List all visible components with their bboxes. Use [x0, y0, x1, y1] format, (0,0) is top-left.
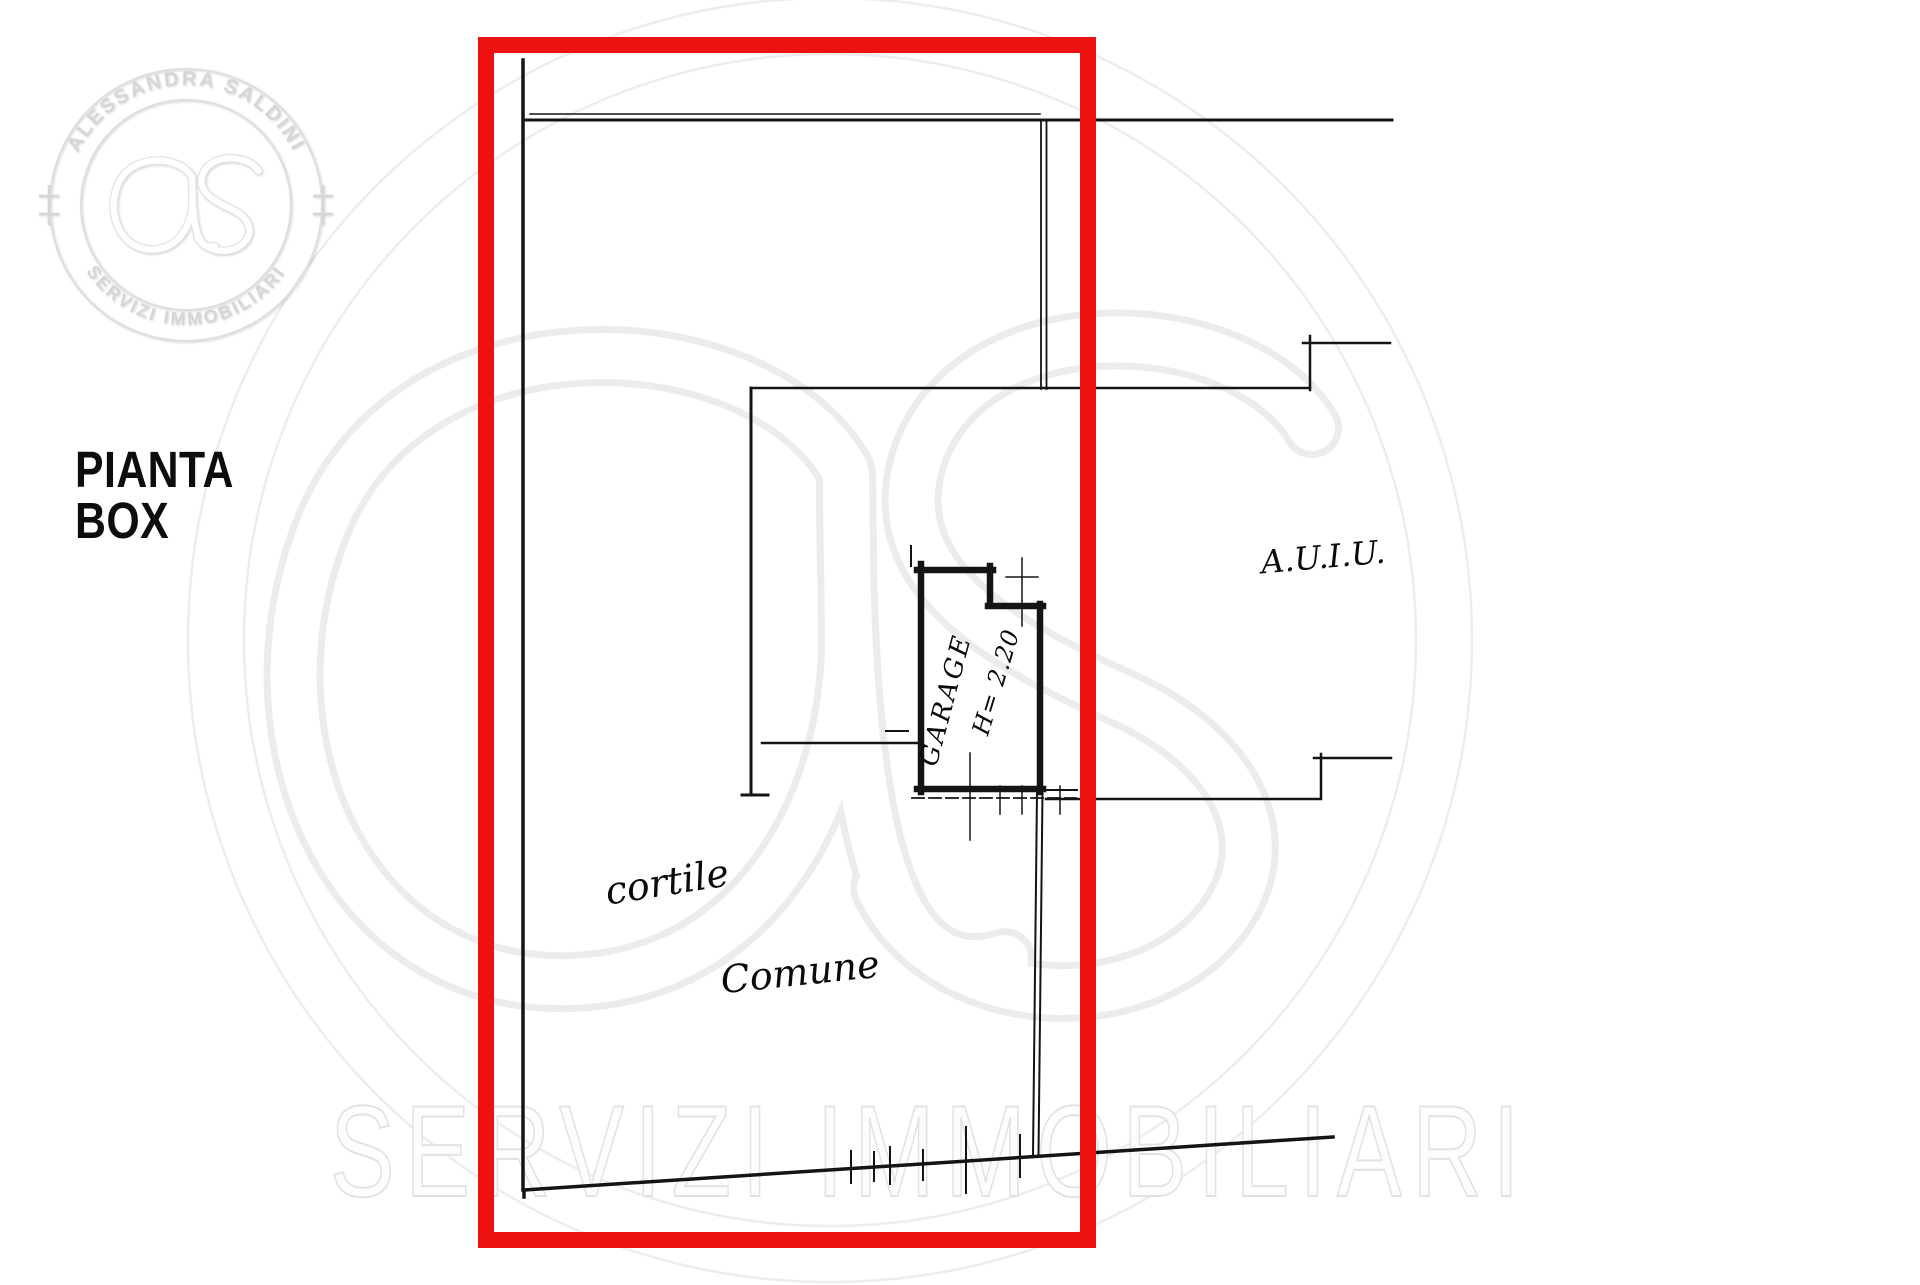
logo-top-arc-text: ALESSANDRA SALDINI: [63, 68, 309, 155]
agency-logo: ALESSANDRA SALDINI SERVIZI IMMOBILIARI: [30, 55, 342, 355]
page-title: PIANTA BOX: [75, 444, 234, 546]
svg-text:ALESSANDRA SALDINI: ALESSANDRA SALDINI: [63, 68, 309, 155]
logo-right-ornament: [313, 185, 333, 225]
floorplan-page: SERVIZI IMMOBILIARI: [0, 0, 1920, 1285]
logo-left-ornament: [39, 185, 59, 225]
highlight-box: [478, 37, 1096, 1248]
logo-as-monogram-icon-fill: [114, 158, 259, 251]
